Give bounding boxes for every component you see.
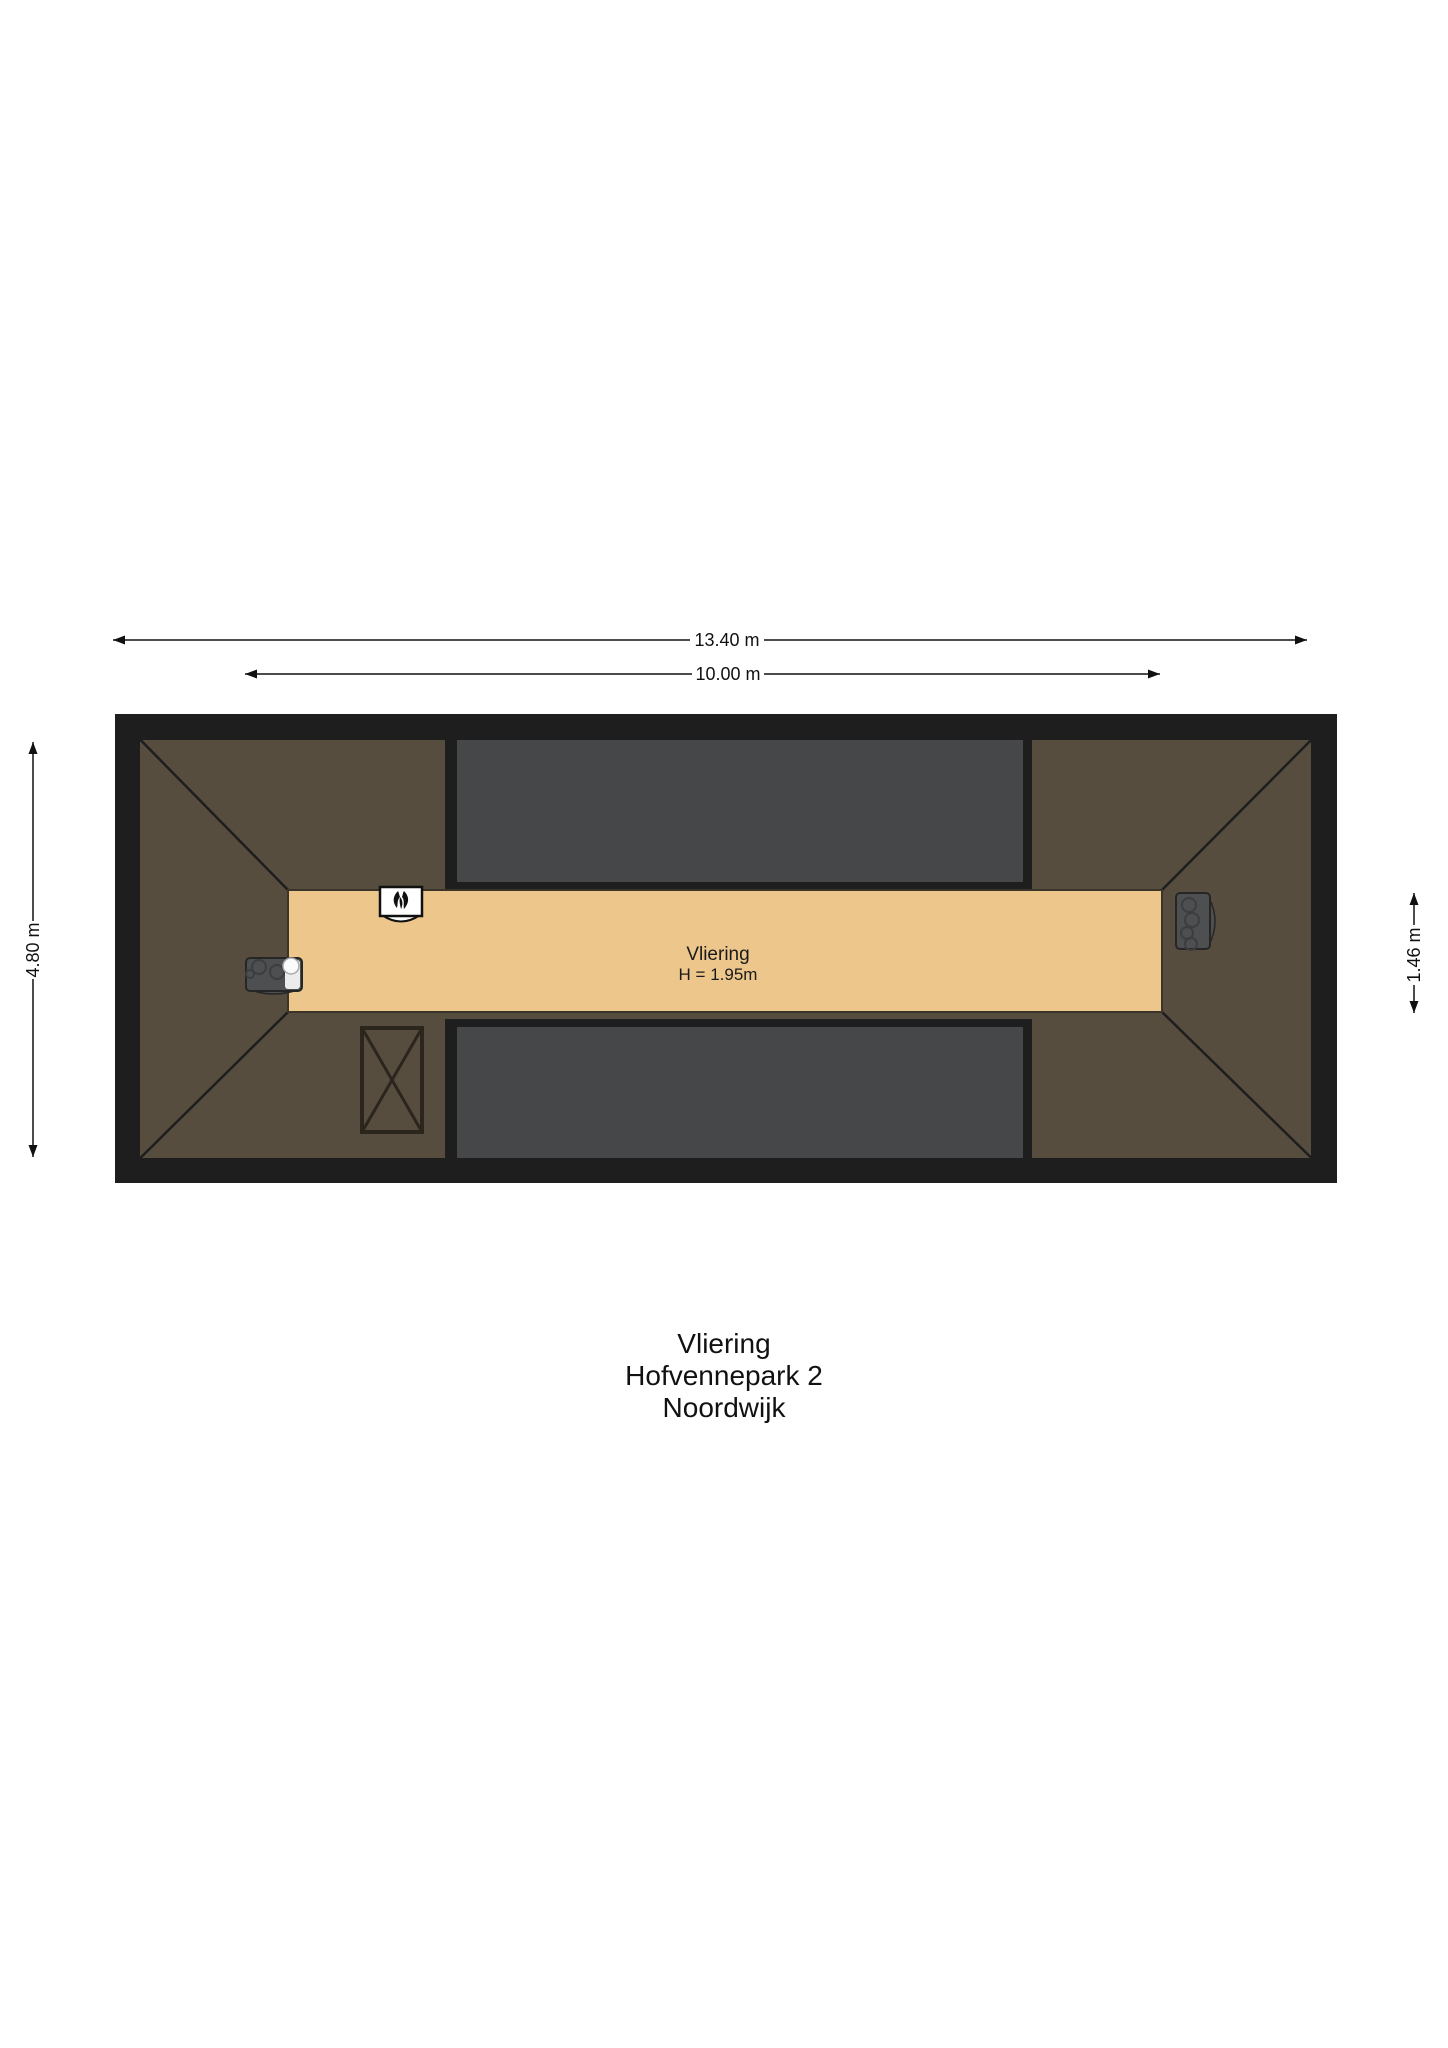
room-height-label: H = 1.95m [679, 965, 758, 984]
dimension-total-width: 13.40 m [113, 630, 1307, 650]
caption-address: Hofvennepark 2 [0, 1360, 1448, 1392]
roof-section-bottom [445, 1019, 1032, 1158]
boiler-left-icon [246, 958, 302, 994]
caption-room: Vliering [0, 1328, 1448, 1360]
boiler-right-icon [1176, 893, 1215, 950]
dimension-label-total-height: 4.80 m [23, 922, 43, 977]
dimension-inner-width: 10.00 m [245, 664, 1160, 684]
dimension-label-total-width: 13.40 m [694, 630, 759, 650]
dimension-label-inner-width: 10.00 m [695, 664, 760, 684]
roof-section-top [445, 740, 1032, 890]
dimension-total-height: 4.80 m [23, 742, 43, 1157]
mechanical-ventilation-icon [380, 887, 422, 922]
caption: Vliering Hofvennepark 2 Noordwijk [0, 1328, 1448, 1424]
floorplan-drawing: 13.40 m 10.00 m 4.80 m 1.46 m [0, 0, 1448, 2048]
dimension-strip-height: 1.46 m [1404, 893, 1424, 1013]
room-label: Vliering [686, 944, 749, 965]
dimension-label-strip-height: 1.46 m [1404, 927, 1424, 982]
floorplan-page: 13.40 m 10.00 m 4.80 m 1.46 m [0, 0, 1448, 2048]
caption-city: Noordwijk [0, 1392, 1448, 1424]
